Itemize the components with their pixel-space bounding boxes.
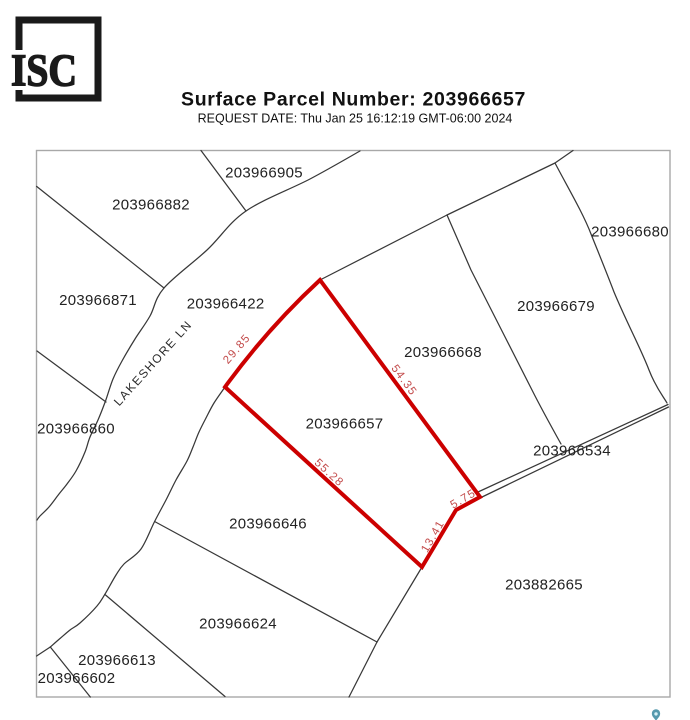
svg-text:203966668: 203966668 (404, 344, 482, 361)
svg-text:203966905: 203966905 (225, 165, 303, 182)
svg-text:REQUEST DATE: Thu Jan 25 16:12: REQUEST DATE: Thu Jan 25 16:12:19 GMT-06… (198, 112, 513, 126)
svg-text:203966657: 203966657 (306, 416, 384, 433)
svg-text:203966422: 203966422 (187, 296, 265, 313)
svg-text:Surface Parcel Number: 2039666: Surface Parcel Number: 203966657 (181, 89, 526, 111)
svg-text:203966613: 203966613 (78, 652, 156, 669)
svg-text:203966602: 203966602 (38, 670, 116, 687)
svg-text:203966624: 203966624 (199, 616, 277, 633)
svg-text:203966680: 203966680 (591, 224, 669, 241)
svg-text:203966646: 203966646 (229, 516, 307, 533)
svg-text:203882665: 203882665 (505, 577, 583, 594)
svg-text:203966679: 203966679 (517, 298, 595, 315)
svg-text:203966860: 203966860 (37, 421, 115, 438)
svg-text:203966534: 203966534 (533, 443, 611, 460)
svg-text:203966871: 203966871 (59, 292, 137, 309)
svg-text:ISC: ISC (11, 46, 77, 96)
svg-text:203966882: 203966882 (112, 197, 190, 214)
